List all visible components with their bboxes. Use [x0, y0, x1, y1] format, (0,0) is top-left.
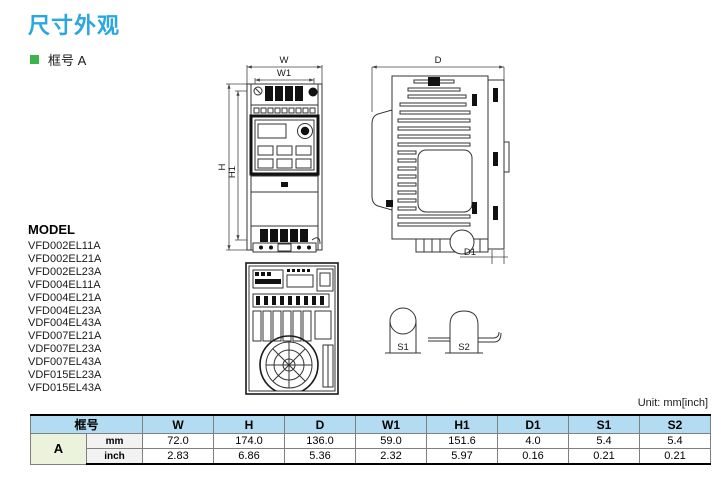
value-cell: 5.4 — [640, 434, 711, 449]
table-row-mm: A mm 72.0 174.0 136.0 59.0 151.6 4.0 5.4… — [31, 434, 711, 449]
model-item: VFD015EL43A — [28, 382, 101, 395]
front-view-drawing: W W1 H H1 — [214, 54, 372, 256]
value-cell: 151.6 — [427, 434, 498, 449]
model-item: VFD002EL23A — [28, 266, 101, 279]
frame-section-heading: 框号 A — [30, 50, 86, 69]
col-header-h: H — [214, 415, 285, 434]
frame-section-label: 框号 A — [48, 50, 86, 69]
col-header-w: W — [143, 415, 214, 434]
value-cell: 174.0 — [214, 434, 285, 449]
dim-label-h1: H1 — [227, 166, 238, 178]
value-cell: 6.86 — [214, 449, 285, 465]
unit-cell-inch: inch — [87, 449, 143, 465]
model-item: VFD004EL21A — [28, 292, 101, 305]
value-cell: 136.0 — [285, 434, 356, 449]
table-row-inch: inch 2.83 6.86 5.36 2.32 5.97 0.16 0.21 … — [31, 449, 711, 465]
value-cell: 59.0 — [356, 434, 427, 449]
value-cell: 72.0 — [143, 434, 214, 449]
cooling-fan — [260, 336, 318, 394]
table-header-row: 框号 W H D W1 H1 D1 S1 S2 — [31, 415, 711, 434]
col-header-s2: S2 — [640, 415, 711, 434]
col-header-d: D — [285, 415, 356, 434]
mounting-hole-details: S1 S2 — [376, 302, 506, 364]
dim-label-d1: D1 — [464, 247, 476, 258]
mount-hole-label-s1: S1 — [397, 342, 409, 353]
col-header-d1: D1 — [498, 415, 569, 434]
dim-label-w1: W1 — [277, 68, 291, 79]
col-header-s1: S1 — [569, 415, 640, 434]
col-header-frame: 框号 — [31, 415, 143, 434]
value-cell: 0.16 — [498, 449, 569, 465]
keypad-display — [258, 124, 286, 138]
model-item: VFD007EL21A — [28, 330, 101, 343]
unit-note: Unit: mm[inch] — [638, 397, 708, 409]
rj45-port — [317, 269, 333, 291]
frame-cell: A — [31, 434, 87, 465]
model-list-header: MODEL — [28, 222, 101, 237]
value-cell: 2.32 — [356, 449, 427, 465]
green-square-bullet-icon — [30, 55, 39, 64]
unit-cell-mm: mm — [87, 434, 143, 449]
col-header-h1: H1 — [427, 415, 498, 434]
model-item: VFD004EL11A — [28, 279, 101, 292]
value-cell: 2.83 — [143, 449, 214, 465]
value-cell: 0.21 — [569, 449, 640, 465]
model-item: VDF007EL23A — [28, 343, 101, 356]
dim-label-w: W — [280, 55, 289, 66]
model-item: VFD002EL11A — [28, 240, 101, 253]
dim-label-d: D — [435, 55, 442, 66]
mount-hole-label-s2: S2 — [458, 342, 470, 353]
col-header-w1: W1 — [356, 415, 427, 434]
model-item: VDF015EL23A — [28, 369, 101, 382]
dimensions-table: 框号 W H D W1 H1 D1 S1 S2 A mm 72.0 174.0 … — [30, 414, 711, 465]
value-cell: 5.36 — [285, 449, 356, 465]
model-item: VFD002EL21A — [28, 253, 101, 266]
model-item: VDF004EL43A — [28, 317, 101, 330]
page-title: 尺寸外观 — [28, 8, 120, 40]
model-item: VFD004EL23A — [28, 305, 101, 318]
side-view-drawing: D D1 — [364, 54, 512, 266]
value-cell: 5.97 — [427, 449, 498, 465]
value-cell: 0.21 — [640, 449, 711, 465]
model-item: VDF007EL43A — [28, 356, 101, 369]
manual-page: 尺寸外观 框号 A W W1 H H1 — [0, 0, 712, 490]
model-list: MODEL VFD002EL11A VFD002EL21A VFD002EL23… — [28, 222, 101, 395]
bottom-view-drawing — [241, 261, 359, 397]
value-cell: 4.0 — [498, 434, 569, 449]
value-cell: 5.4 — [569, 434, 640, 449]
